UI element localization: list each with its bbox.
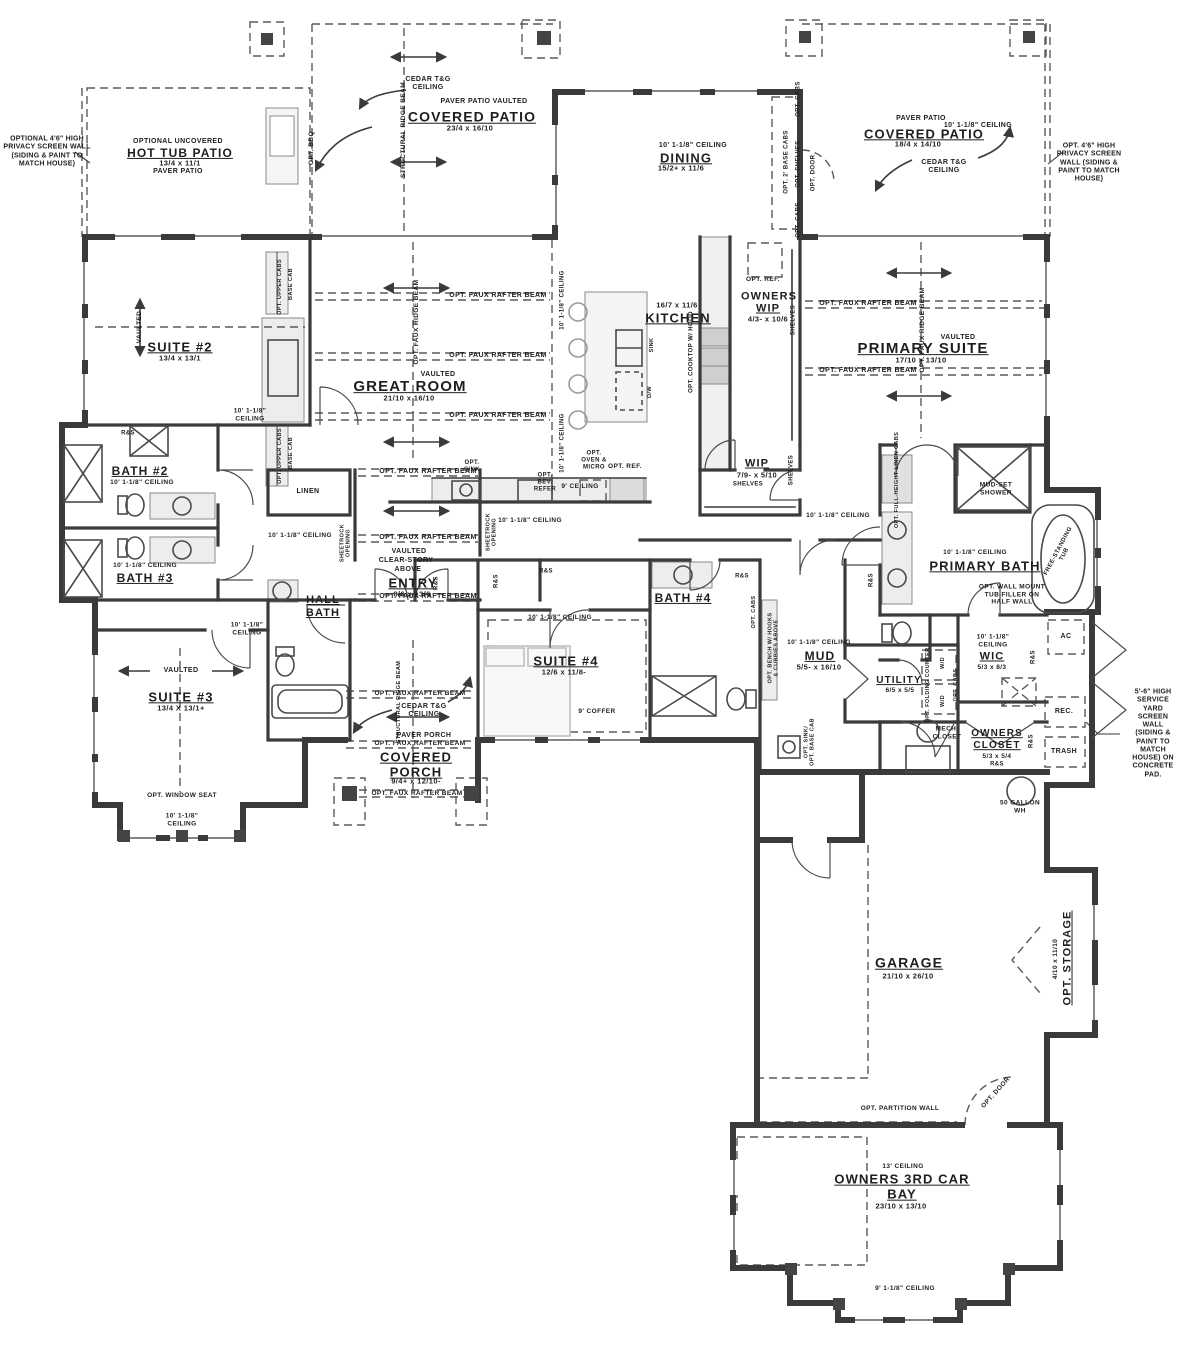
structural-posts bbox=[118, 31, 1035, 1310]
water-heater-tank bbox=[1007, 777, 1035, 805]
toilet-hallbath bbox=[276, 647, 294, 676]
toilet-bath3 bbox=[118, 537, 144, 559]
service-yard-doors bbox=[1092, 622, 1126, 738]
porch-post-1 bbox=[342, 786, 357, 801]
stool-4 bbox=[569, 411, 587, 429]
door-utility-chevron bbox=[845, 658, 868, 700]
door-entry-double bbox=[375, 569, 448, 600]
cooktop-2 bbox=[700, 348, 730, 366]
porch-post-outline-2 bbox=[456, 778, 487, 825]
garage-bay-divider bbox=[759, 845, 868, 1078]
closet-suite2 bbox=[130, 426, 168, 456]
leader-patio-cedar bbox=[360, 90, 406, 108]
cooktop-1 bbox=[700, 328, 730, 346]
floor-plan-drawing bbox=[0, 0, 1200, 1357]
bbq-inner bbox=[270, 116, 294, 156]
dining-opt-door-arc bbox=[802, 150, 834, 182]
door-suite2 bbox=[320, 387, 358, 425]
primary-beams bbox=[805, 301, 1045, 375]
shower-bath3 bbox=[64, 540, 102, 597]
mud-opt-sink bbox=[778, 736, 800, 758]
linen-cab bbox=[882, 455, 912, 503]
storage-door-chevron bbox=[1012, 927, 1040, 993]
leader-patio2-left bbox=[876, 160, 912, 190]
porch-post-2 bbox=[464, 786, 479, 801]
bay-ceiling-outline bbox=[737, 1137, 867, 1265]
tub-hallbath bbox=[272, 685, 348, 718]
door-mud bbox=[800, 540, 835, 575]
bay-post-3 bbox=[955, 1298, 967, 1310]
toilet-bath2 bbox=[118, 494, 144, 516]
door-suite4 bbox=[550, 610, 588, 648]
shower-bath4 bbox=[652, 676, 716, 716]
walls-exterior bbox=[62, 92, 1098, 1320]
door-primary-bath bbox=[842, 527, 880, 565]
door-bath2 bbox=[218, 470, 253, 505]
great-room-beams bbox=[315, 293, 550, 420]
dryer-box bbox=[922, 684, 956, 714]
patio-post-1 bbox=[261, 33, 273, 45]
toilet-bath4 bbox=[727, 688, 756, 710]
trash-box bbox=[1045, 737, 1085, 767]
floor-plan: OPTIONAL 4'6" HIGH PRIVACY SCREEN WALL (… bbox=[0, 0, 1200, 1357]
patio-post-4 bbox=[1023, 31, 1035, 43]
rec-box bbox=[1045, 697, 1085, 727]
door-hallbath bbox=[307, 605, 345, 643]
door-owners-closet-chevron bbox=[965, 722, 1035, 745]
door-garage-entry bbox=[792, 840, 830, 878]
patio-post-2 bbox=[537, 31, 551, 45]
covered-patio-outline bbox=[312, 24, 553, 237]
door-mech bbox=[900, 722, 955, 757]
seat-post-2 bbox=[176, 830, 188, 842]
shower-primary bbox=[957, 447, 1030, 510]
door-bath3 bbox=[218, 545, 253, 580]
leader-porch-left bbox=[354, 710, 392, 732]
ref-space bbox=[610, 478, 644, 502]
porch-post-outline-1 bbox=[334, 778, 365, 825]
bay-post-4 bbox=[1003, 1263, 1015, 1275]
dashed-outlines bbox=[82, 20, 1085, 1265]
mech-platform bbox=[906, 746, 950, 772]
door-wic bbox=[968, 583, 1000, 615]
mud-bench bbox=[762, 600, 777, 700]
shower-bath2 bbox=[64, 445, 102, 502]
leader-patio2-right bbox=[978, 128, 1010, 158]
door-suite3 bbox=[212, 630, 250, 668]
leader-patio-left bbox=[316, 127, 372, 170]
dining-opt-cabs-outline bbox=[772, 97, 798, 229]
door-toilet-room bbox=[898, 660, 922, 684]
stool-2 bbox=[569, 339, 587, 357]
toilet-primary bbox=[882, 622, 911, 644]
ac-box bbox=[1048, 620, 1084, 654]
seat-post-3 bbox=[234, 830, 246, 842]
suite4-bed bbox=[484, 646, 570, 736]
porch-beams bbox=[346, 691, 476, 797]
cooktop-3 bbox=[700, 366, 730, 384]
door-wip2 bbox=[770, 470, 800, 500]
stool-3 bbox=[569, 375, 587, 393]
opt-door-arc bbox=[965, 1077, 1013, 1125]
washer-box bbox=[922, 650, 956, 680]
tub-primary-freestanding bbox=[1032, 505, 1094, 613]
stool-1 bbox=[569, 303, 587, 321]
seat-post-1 bbox=[118, 830, 130, 842]
wip-opt-ref-box bbox=[748, 243, 782, 277]
bay-post-2 bbox=[833, 1298, 845, 1310]
primary-vanity bbox=[882, 512, 912, 604]
patio-post-3 bbox=[799, 31, 811, 43]
bay-post-1 bbox=[785, 1263, 797, 1275]
